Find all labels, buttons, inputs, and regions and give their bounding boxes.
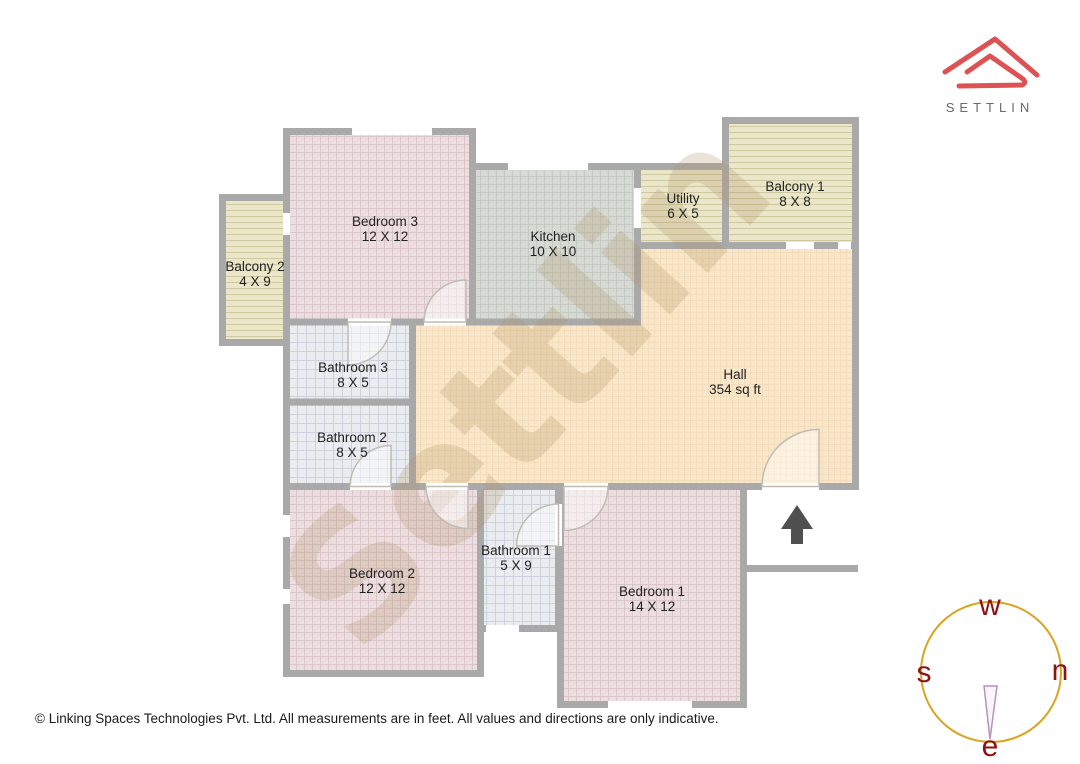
compass-letter-n: n bbox=[1052, 654, 1069, 687]
window bbox=[608, 701, 692, 708]
window bbox=[352, 128, 432, 135]
brand-name: SETTLIN bbox=[928, 100, 1052, 115]
label-kitchen-name: Kitchen bbox=[530, 229, 575, 244]
label-bedroom3-name: Bedroom 3 bbox=[352, 214, 418, 229]
entrance-arrow-icon bbox=[781, 505, 813, 544]
label-hall-name: Hall bbox=[723, 367, 746, 382]
label-bathroom3-dims: 8 X 5 bbox=[337, 375, 369, 390]
label-bedroom2-dims: 12 X 12 bbox=[359, 581, 406, 596]
label-kitchen-dims: 10 X 10 bbox=[530, 244, 577, 259]
copyright-text: © Linking Spaces Technologies Pvt. Ltd. … bbox=[35, 711, 719, 726]
label-bathroom2-name: Bathroom 2 bbox=[317, 430, 387, 445]
label-balcony2-dims: 4 X 9 bbox=[239, 274, 271, 289]
compass-letter-s: s bbox=[917, 656, 932, 689]
label-balcony1-name: Balcony 1 bbox=[765, 179, 824, 194]
floorplan-page: Settlin bbox=[0, 0, 1080, 764]
compass-letter-e: e bbox=[982, 730, 999, 763]
label-bathroom1-name: Bathroom 1 bbox=[481, 543, 551, 558]
label-balcony2-name: Balcony 2 bbox=[225, 259, 284, 274]
settlin-roof-icon bbox=[938, 34, 1042, 90]
label-bedroom3-dims: 12 X 12 bbox=[362, 229, 409, 244]
window bbox=[508, 163, 588, 170]
label-bathroom3-name: Bathroom 3 bbox=[318, 360, 388, 375]
label-bedroom1-name: Bedroom 1 bbox=[619, 584, 685, 599]
label-utility-dims: 6 X 5 bbox=[667, 206, 699, 221]
label-bathroom2-dims: 8 X 5 bbox=[336, 445, 368, 460]
label-utility-name: Utility bbox=[667, 191, 700, 206]
window bbox=[283, 589, 290, 604]
label-hall-dims: 354 sq ft bbox=[709, 382, 761, 397]
label-bedroom2-name: Bedroom 2 bbox=[349, 566, 415, 581]
door-gap bbox=[283, 213, 290, 235]
label-bathroom1-dims: 5 X 9 bbox=[500, 558, 532, 573]
label-bedroom1-dims: 14 X 12 bbox=[629, 599, 676, 614]
settlin-logo: SETTLIN bbox=[928, 34, 1052, 115]
window bbox=[786, 242, 814, 249]
compass: w s n e bbox=[917, 589, 1069, 763]
window bbox=[283, 515, 290, 537]
door-gap bbox=[634, 188, 641, 228]
window bbox=[838, 242, 851, 249]
compass-letter-w: w bbox=[978, 589, 1001, 622]
label-balcony1-dims: 8 X 8 bbox=[779, 194, 811, 209]
floorplan-drawing: Settlin bbox=[0, 0, 1080, 764]
window bbox=[486, 625, 519, 632]
